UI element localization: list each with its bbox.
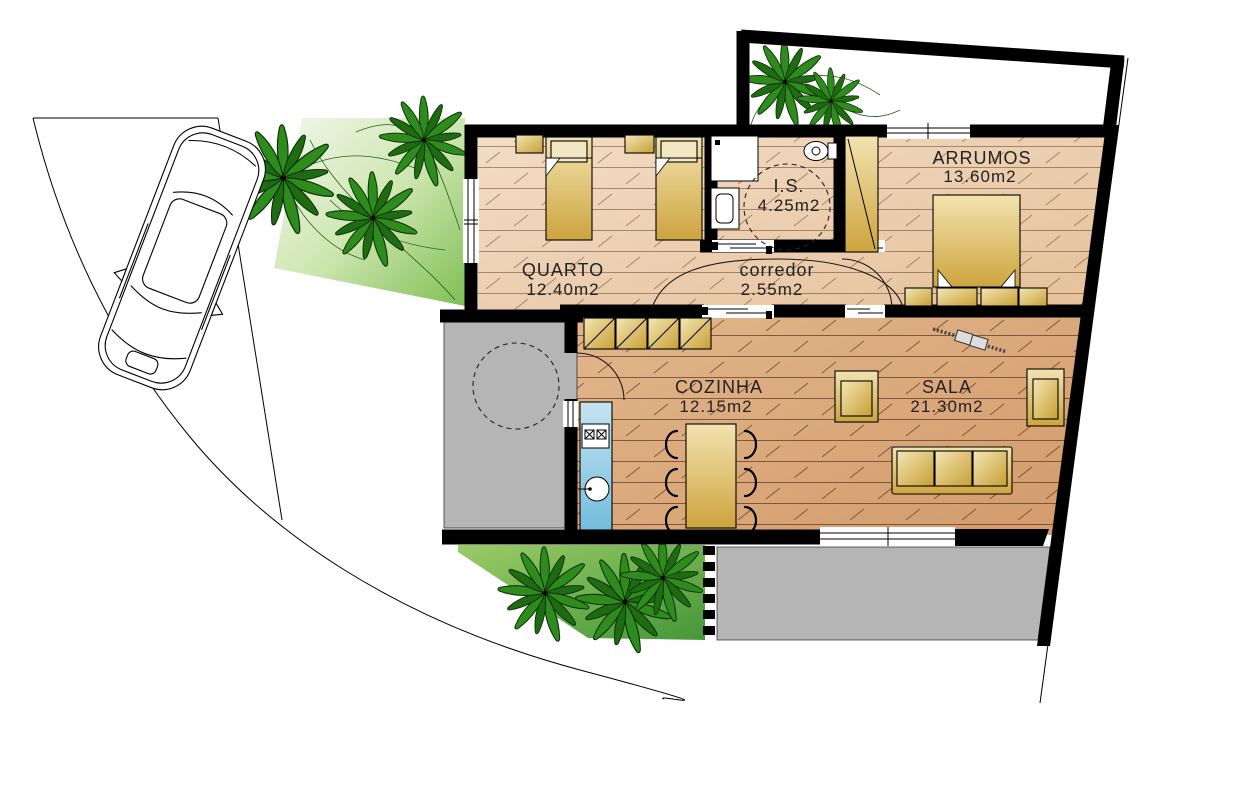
nightstand xyxy=(625,135,654,153)
dining-table xyxy=(686,424,736,528)
room-label-sala: SALA xyxy=(922,377,972,397)
south-patio xyxy=(717,547,1050,640)
room-label-is: I.S. xyxy=(773,176,804,196)
window-arrumos-north xyxy=(887,123,970,139)
courtyard xyxy=(741,31,1124,137)
nightstand xyxy=(1019,288,1047,306)
window-bedroom-west xyxy=(463,179,479,263)
car xyxy=(81,114,284,402)
palm-tree xyxy=(742,40,825,126)
room-label-corredor: corredor xyxy=(739,260,814,280)
room-area-cozinha: 12.15m2 xyxy=(679,397,752,416)
wardrobe xyxy=(845,136,878,252)
room-area-is: 4.25m2 xyxy=(758,196,821,215)
bed-bench xyxy=(937,288,977,306)
floor-plan: QUARTO 12.40m2 I.S. 4.25m2 corredor 2.55… xyxy=(0,0,1257,793)
sofa xyxy=(892,447,1012,494)
single-bed xyxy=(656,137,702,240)
double-bed xyxy=(933,195,1020,287)
armchair xyxy=(835,371,878,422)
upper-cabinets xyxy=(584,318,711,349)
toilet xyxy=(804,142,837,161)
south-wall xyxy=(955,529,1049,546)
west-garden xyxy=(228,96,466,306)
window-sala-south xyxy=(820,527,955,546)
stove xyxy=(582,424,609,448)
room-area-sala: 21.30m2 xyxy=(910,397,983,416)
nightstand xyxy=(905,288,932,306)
room-label-arrumos: ARRUMOS xyxy=(932,148,1031,168)
sliding-door-corridor-south xyxy=(702,305,774,319)
sliding-door-sala xyxy=(845,305,885,318)
single-bed xyxy=(546,137,592,240)
room-label-cozinha: COZINHA xyxy=(675,377,763,397)
kitchen-counter xyxy=(578,402,612,530)
window-kitchen-west xyxy=(563,401,578,427)
room-area-quarto: 12.40m2 xyxy=(526,280,599,299)
nightstand xyxy=(516,135,543,153)
sliding-door-bathroom xyxy=(712,240,774,254)
room-area-corredor: 2.55m2 xyxy=(741,280,804,299)
room-label-quarto: QUARTO xyxy=(522,260,604,280)
armchair xyxy=(1027,369,1064,426)
bed-bench xyxy=(981,288,1018,306)
west-patio xyxy=(444,322,577,528)
room-area-arrumos: 13.60m2 xyxy=(943,167,1016,186)
courtyard-east-wall xyxy=(1109,59,1118,131)
